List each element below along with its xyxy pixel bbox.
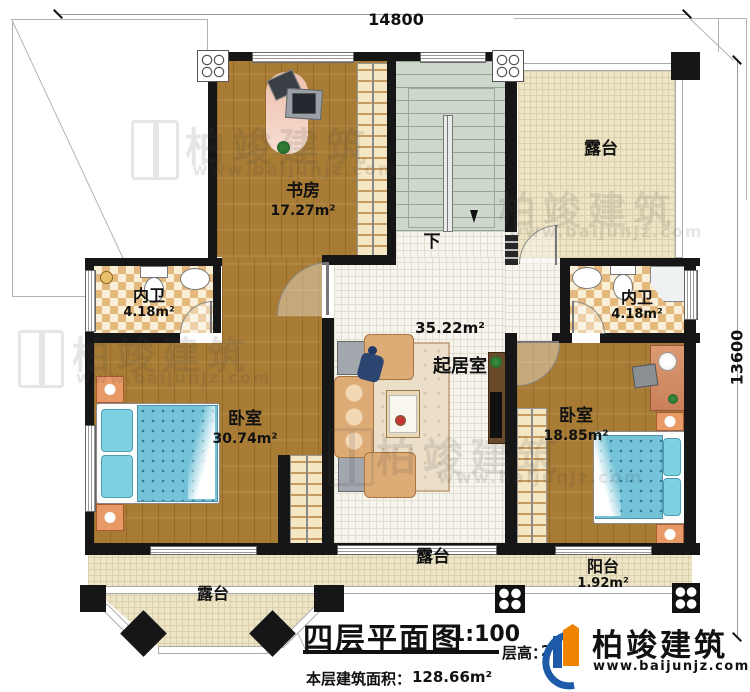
door-panel	[555, 225, 557, 265]
bedroom-left-window	[85, 425, 96, 512]
blanket-fold	[595, 436, 621, 516]
pillow	[663, 478, 681, 516]
column	[80, 585, 106, 612]
roof-line	[12, 296, 85, 297]
room-area-bath-left: 4.18m²	[112, 306, 186, 321]
room-area-balcony: 1.92m²	[568, 577, 638, 592]
coffee-table-top	[389, 395, 417, 433]
stair-hall-floor	[396, 232, 517, 258]
room-area-bath-right: 4.18m²	[600, 308, 674, 323]
column	[495, 585, 525, 613]
dimension-right-label: 13600	[728, 318, 747, 398]
room-label-living: 起居室	[412, 357, 508, 378]
nightstand-lamp-icon	[656, 524, 684, 545]
pillow	[101, 455, 133, 498]
column	[314, 585, 344, 612]
building-area-value: 128.66m²	[412, 668, 492, 686]
room-label-balcony: 阳台	[570, 558, 636, 576]
wall	[213, 258, 221, 333]
parapet	[518, 63, 678, 71]
door-panel	[210, 301, 212, 333]
roof-line	[12, 19, 207, 20]
nightstand-lamp-icon	[96, 376, 124, 403]
roof-line	[746, 18, 747, 200]
flower-vase-icon	[395, 415, 406, 426]
brand-logo-building-icon	[553, 636, 562, 668]
table-lamp-icon	[658, 352, 677, 371]
wall	[208, 52, 217, 258]
door-panel	[326, 262, 329, 315]
pillow	[663, 438, 681, 476]
brand-logo-building-icon	[563, 624, 579, 666]
column	[671, 52, 700, 80]
vent-shaft	[492, 50, 524, 82]
door-panel	[517, 341, 559, 343]
room-label-study: 书房	[258, 182, 348, 202]
tv-icon	[632, 363, 659, 388]
room-label-terrace-bottom-left: 露台	[180, 585, 246, 603]
vent-shaft	[197, 50, 229, 82]
nightstand-lamp-icon	[656, 412, 684, 431]
bedroom-left-south-window	[150, 546, 257, 555]
bedroom-left-closet	[290, 455, 324, 550]
building-area-label: 本层建筑面积：	[306, 668, 411, 689]
stair-handrail	[443, 115, 453, 232]
column	[672, 583, 700, 613]
stair-direction-arrow	[470, 210, 478, 223]
pillow	[101, 409, 133, 452]
tv-icon	[490, 392, 502, 438]
bedroom-right-south-window	[555, 546, 652, 555]
wall	[85, 258, 222, 266]
brand-logo: 柏竣建筑 www.baijunjz.com	[543, 620, 750, 686]
parapet	[675, 63, 683, 258]
room-label-terrace-bottom-center: 露台	[400, 548, 466, 568]
wall	[322, 318, 334, 548]
wall	[505, 333, 517, 343]
wall	[387, 52, 396, 265]
dimension-top-label: 14800	[350, 10, 442, 29]
plant-icon	[277, 141, 290, 154]
watermark-logo-icon	[131, 120, 179, 180]
wall	[560, 258, 570, 341]
nightstand-lamp-icon	[96, 504, 124, 531]
wall	[322, 255, 334, 262]
room-label-bath-right: 内卫	[604, 289, 670, 307]
sofa	[334, 376, 374, 458]
shoe-cabinet	[505, 235, 518, 265]
wall	[278, 455, 290, 548]
room-area-bedroom-left: 30.74m²	[200, 431, 290, 447]
brand-url: www.baijunjz.com	[593, 659, 750, 674]
watermark-logo-icon	[18, 330, 64, 388]
pull-cord-icon	[100, 271, 113, 284]
roof-line	[12, 19, 13, 296]
armchair	[364, 452, 416, 498]
plant-icon	[668, 394, 678, 404]
bath-right-window	[684, 270, 698, 320]
stairs-down-label: 下	[418, 233, 446, 253]
computer-icon	[292, 93, 316, 114]
room-area-study: 17.27m²	[258, 203, 348, 219]
sink-icon	[180, 268, 210, 290]
room-area-living: 35.22m²	[405, 320, 495, 337]
study-wardrobe	[357, 63, 389, 257]
wall	[85, 333, 180, 343]
stair-window	[420, 52, 486, 63]
title-underline	[303, 650, 499, 654]
room-label-terrace-top: 露台	[568, 140, 634, 160]
sink-icon	[572, 267, 602, 289]
floor-plan: 书房 17.27m² 露台 内卫 4.18m² 内卫 4.18m² 35.22m…	[0, 0, 750, 692]
room-label-bedroom-right: 卧室	[545, 407, 607, 427]
bath-left-window	[85, 270, 96, 332]
room-area-bedroom-right: 18.85m²	[538, 428, 614, 444]
study-window	[252, 52, 354, 63]
room-label-bedroom-left: 卧室	[205, 410, 285, 430]
wall	[560, 258, 700, 266]
floor-height-label: 层高：	[502, 642, 547, 663]
door-panel	[572, 301, 574, 333]
parapet-bay-bottom	[158, 646, 268, 654]
room-label-bath-left: 内卫	[116, 287, 182, 305]
roof-line	[514, 18, 746, 19]
roof-line	[207, 19, 208, 52]
